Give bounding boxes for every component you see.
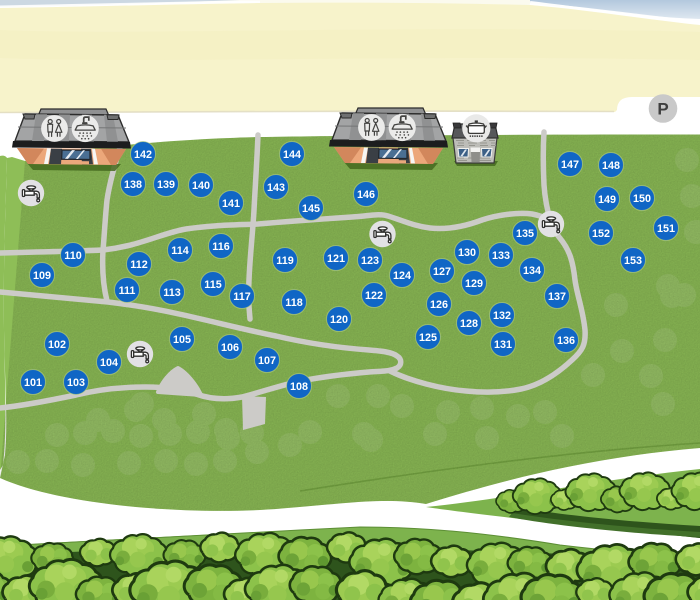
svg-text:145: 145 <box>302 203 320 215</box>
svg-text:147: 147 <box>561 159 579 171</box>
svg-text:148: 148 <box>602 160 620 172</box>
svg-text:108: 108 <box>290 381 308 393</box>
svg-text:116: 116 <box>212 241 229 253</box>
svg-text:150: 150 <box>633 193 651 205</box>
svg-text:124: 124 <box>393 270 411 282</box>
svg-text:142: 142 <box>134 149 152 161</box>
svg-text:136: 136 <box>557 335 575 347</box>
svg-text:135: 135 <box>516 228 534 240</box>
svg-text:110: 110 <box>64 250 81 262</box>
svg-text:128: 128 <box>460 318 478 330</box>
svg-text:119: 119 <box>276 255 293 267</box>
svg-text:131: 131 <box>494 339 512 351</box>
svg-text:117: 117 <box>233 291 250 303</box>
svg-text:113: 113 <box>163 287 180 299</box>
svg-text:137: 137 <box>548 291 566 303</box>
svg-text:125: 125 <box>419 332 437 344</box>
svg-text:103: 103 <box>67 377 85 389</box>
svg-text:141: 141 <box>222 198 240 210</box>
svg-text:118: 118 <box>285 297 302 309</box>
svg-text:140: 140 <box>192 180 210 192</box>
svg-text:122: 122 <box>365 290 383 302</box>
svg-text:138: 138 <box>124 179 142 191</box>
svg-text:106: 106 <box>221 342 239 354</box>
svg-text:146: 146 <box>357 189 375 201</box>
svg-text:102: 102 <box>48 339 66 351</box>
svg-text:120: 120 <box>330 314 348 326</box>
svg-text:130: 130 <box>458 247 476 259</box>
svg-text:133: 133 <box>492 250 510 262</box>
svg-text:132: 132 <box>493 310 511 322</box>
svg-text:139: 139 <box>157 179 175 191</box>
svg-text:127: 127 <box>433 266 451 278</box>
svg-text:152: 152 <box>592 228 610 240</box>
svg-text:104: 104 <box>100 357 118 369</box>
svg-text:101: 101 <box>24 377 42 389</box>
svg-text:126: 126 <box>430 299 448 311</box>
svg-text:115: 115 <box>204 279 221 291</box>
svg-text:121: 121 <box>327 253 345 265</box>
svg-text:149: 149 <box>598 194 616 206</box>
svg-text:123: 123 <box>361 255 379 267</box>
svg-text:129: 129 <box>465 278 483 290</box>
svg-text:112: 112 <box>130 259 147 271</box>
svg-text:144: 144 <box>283 149 301 161</box>
svg-text:153: 153 <box>624 255 642 267</box>
svg-text:105: 105 <box>173 334 191 346</box>
svg-text:P: P <box>657 100 668 119</box>
svg-text:134: 134 <box>523 265 541 277</box>
svg-text:114: 114 <box>171 245 188 257</box>
svg-text:143: 143 <box>267 182 285 194</box>
svg-text:107: 107 <box>258 355 276 367</box>
svg-text:111: 111 <box>119 285 136 297</box>
svg-text:151: 151 <box>657 223 675 235</box>
svg-text:109: 109 <box>33 270 51 282</box>
